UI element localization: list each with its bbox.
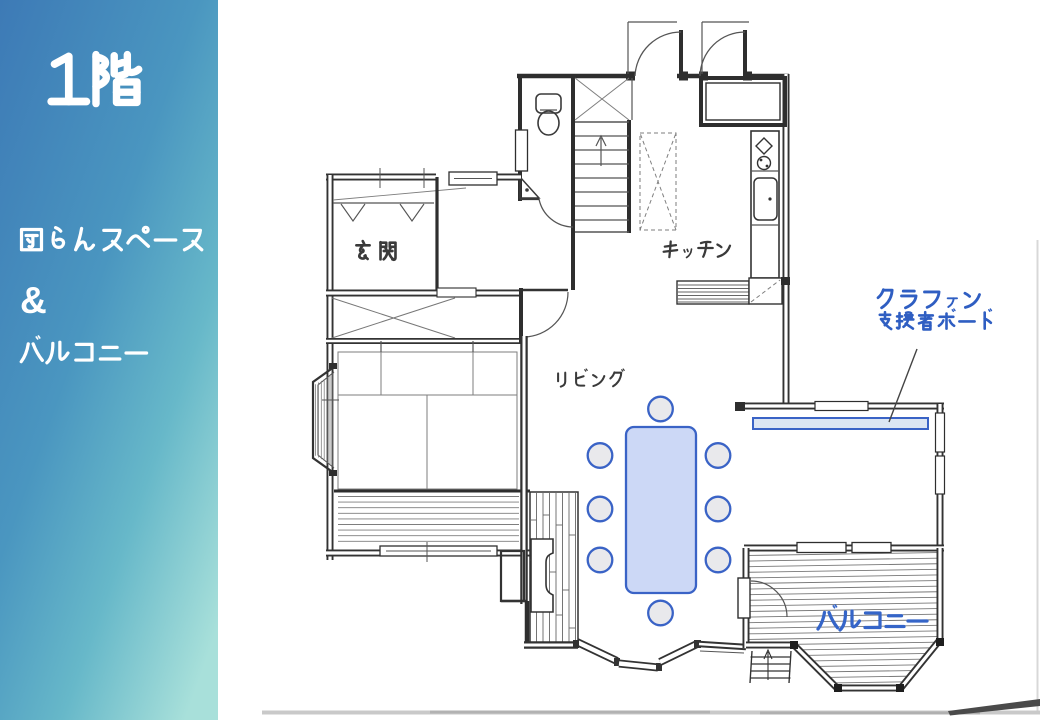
svg-text:&: & xyxy=(20,280,47,321)
